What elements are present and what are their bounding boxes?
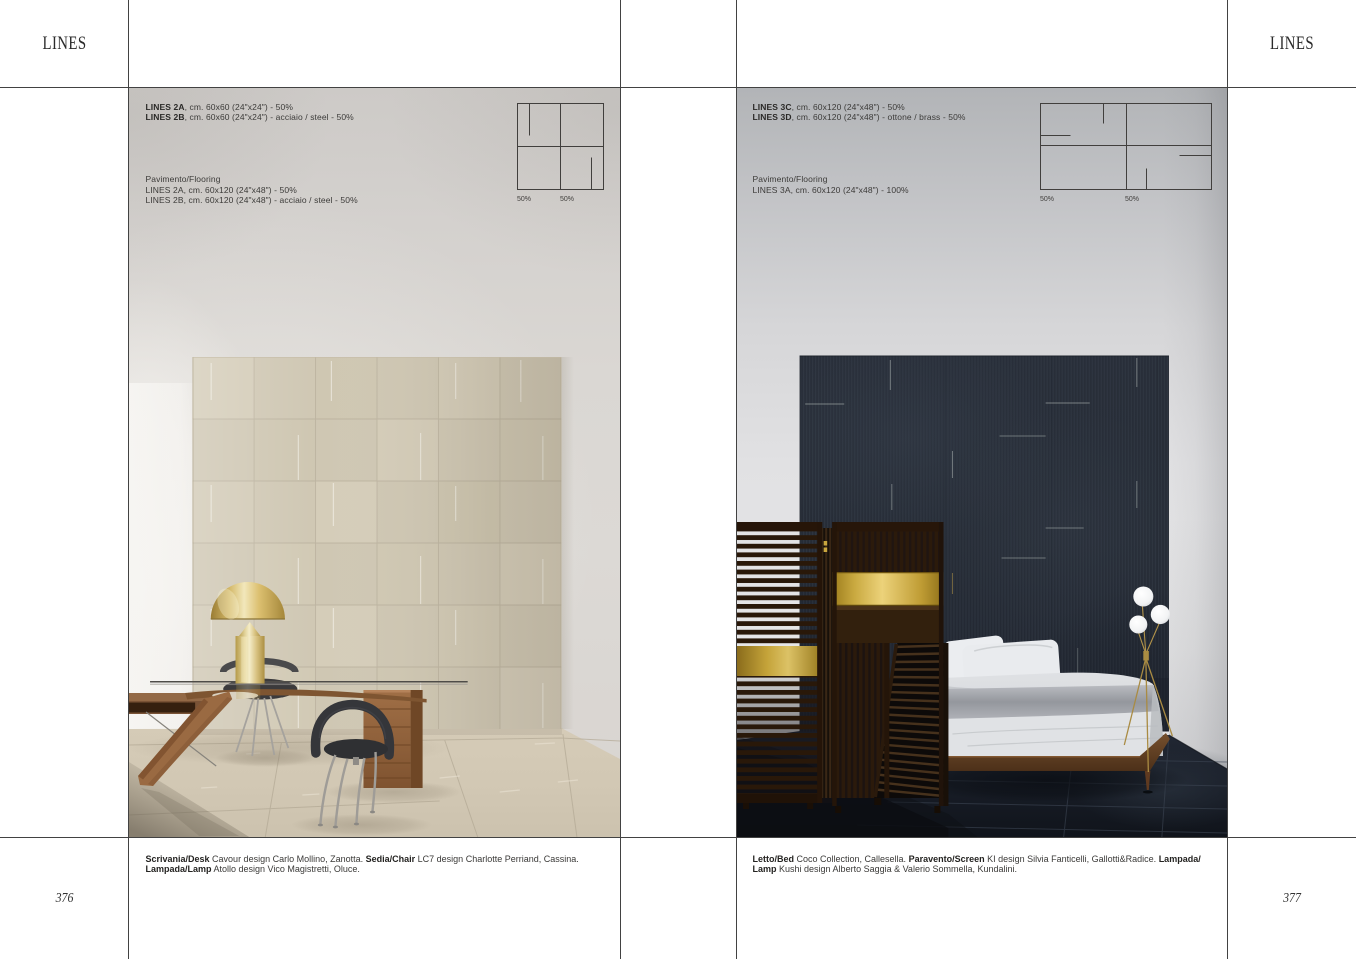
svg-text:50%: 50% <box>560 196 574 203</box>
svg-text:50%: 50% <box>1125 196 1139 203</box>
svg-text:50%: 50% <box>517 196 531 203</box>
svg-text:50%: 50% <box>1040 196 1054 203</box>
